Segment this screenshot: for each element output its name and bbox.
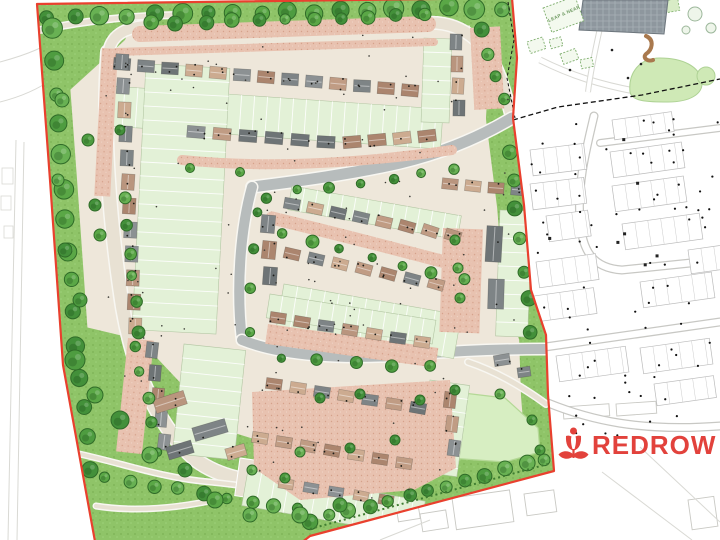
speck [314,281,316,283]
house [265,131,284,145]
speck [262,389,264,391]
tree-icon [450,385,460,395]
large-building-roof [579,0,668,34]
speck [170,89,172,91]
tree-icon [51,144,70,163]
speck [161,335,163,337]
tree-icon [335,244,344,253]
house [212,127,231,141]
estate-tree-dot [668,150,670,152]
tree-icon [464,0,485,19]
speck [264,249,266,251]
tree-icon [382,496,393,507]
speck [155,71,157,73]
estate-tree-dot [674,208,676,210]
tree-icon [82,462,98,478]
speck [127,280,129,282]
tree-icon [225,13,239,27]
tree-icon [245,283,255,293]
speck [287,148,289,150]
estate-tree-dot [701,217,703,219]
house [464,180,481,193]
speck [181,78,183,80]
tree-icon [266,499,280,513]
tree-icon [389,174,398,183]
tree-icon [186,164,195,173]
tree-icon [80,429,96,445]
speck [141,380,143,382]
speck [335,333,337,335]
speck [273,461,275,463]
tree-icon [490,71,501,82]
speck [193,87,195,89]
estate-tree-dot [569,316,571,318]
speck [393,422,395,424]
estate-tree-dot [642,153,644,155]
outline-tree-icon [688,7,702,21]
tree-icon [200,16,214,30]
house [371,452,389,465]
estate-tree-dot [589,342,591,344]
estate-tree-dot [675,354,677,356]
tree-icon [121,219,133,231]
tree-icon [89,199,101,211]
speck [183,328,185,330]
tree-icon [363,500,377,514]
speck [399,181,401,183]
house [161,62,179,75]
speck [156,206,158,208]
speck [349,218,351,220]
tree-icon [58,243,72,257]
estate-tree-dot [575,415,577,417]
estate-tree-dot [653,376,655,378]
speck [384,109,386,111]
tree-icon [132,326,145,339]
tree-icon [111,411,129,429]
speck [507,99,509,101]
speck [362,139,364,141]
tree-icon [495,2,510,17]
house [417,129,436,143]
tree-icon [345,443,355,453]
speck [286,329,288,331]
speck [339,261,341,263]
masterplan-svg: LEAP & NEAP REDROW [0,0,720,540]
tree-icon [513,232,525,244]
tree-icon [324,509,335,520]
house [232,68,250,81]
tree-icon [245,327,254,336]
estate-tree-dot [546,233,548,235]
tree-icon [404,489,417,502]
speck [412,37,414,39]
speck [503,194,505,196]
speck [197,129,199,131]
estate-tree-dot [711,175,713,177]
estate-tree-dot [568,395,570,397]
tree-icon [124,475,137,488]
speck [245,79,247,81]
tree-icon [527,415,537,425]
estate-tree-dot [628,391,630,393]
tree-icon [306,235,319,248]
estate-tree-dot [574,143,576,145]
estate-tree-dot [574,173,576,175]
estate-tree-dot [634,311,636,313]
estate-tree-dot [587,328,589,330]
estate-tree-dot [640,395,642,397]
estate-tree-dot [644,327,646,329]
speck [125,113,127,115]
speck [276,387,278,389]
house [121,174,135,191]
speck [294,160,296,162]
house [328,486,344,498]
speck [368,55,370,57]
speck [504,172,506,174]
estate-tree-dot [697,365,699,367]
outline-tree-icon [706,23,716,33]
house [453,99,465,116]
estate-tree-dot [673,134,675,136]
estate-tree-dot [593,397,595,399]
estate-tree-dot [697,209,699,211]
estate-tree-dot [531,163,533,165]
tree-icon [134,367,143,376]
estate-tree-dot [575,123,577,125]
speck [282,430,284,432]
tree-icon [315,393,325,403]
estate-tree-dot [615,213,617,215]
speck [285,212,287,214]
estate-tree-dot [680,323,682,325]
speck [439,469,441,471]
house [251,431,269,444]
tree-icon [361,11,375,25]
speck [207,60,209,62]
tree-icon [324,182,335,193]
estate-tree-dot [579,240,581,242]
tree-icon [398,262,407,271]
house [377,82,395,95]
tree-icon [507,201,522,216]
speck [125,63,127,65]
house [317,319,334,332]
estate-tree-dot [658,364,660,366]
speck [308,263,310,265]
estate-tree-dot [653,198,655,200]
park-mark [627,77,630,80]
estate-tree-dot [556,198,558,200]
tree-icon [207,492,223,508]
house [441,178,458,191]
tree-icon [440,0,459,16]
speck [362,35,364,37]
house [239,129,258,143]
tree-icon [425,360,436,371]
tree-icon [503,145,517,159]
speck [315,82,317,84]
tree-icon [253,14,266,27]
tree-icon [350,356,362,368]
tree-icon [417,169,426,178]
tree-icon [508,174,521,187]
tree-icon [422,485,434,497]
tree-icon [99,472,109,482]
estate-tree-dot [539,171,541,173]
speck [234,324,236,326]
estate-tree-dot [649,421,651,423]
house [281,73,299,86]
house [137,60,155,73]
tree-icon [236,168,245,177]
park-mark [640,63,643,66]
tree-icon [253,208,262,217]
speck [215,268,217,270]
tree-icon [71,369,88,386]
estate-tree-dot [594,360,596,362]
tree-icon [311,354,322,365]
speck [385,182,387,184]
house [265,377,282,390]
estate-tree-dot [664,263,666,265]
speck [409,196,411,198]
tree-icon [73,293,87,307]
estate-tree-dot [543,306,545,308]
speck [453,284,455,286]
development-site [37,0,554,540]
estate-tree-dot [685,206,687,208]
tree-icon [249,244,259,254]
tree-icon [425,267,437,279]
speck [267,209,269,211]
estate-tree-dot [578,195,580,197]
tree-icon [453,263,463,273]
speck [260,118,262,120]
estate-mark [623,232,626,235]
speck [143,337,145,339]
estate-tree-dot [652,287,654,289]
house [116,78,131,95]
tree-icon [389,9,402,22]
tree-icon [50,115,67,132]
tree-icon [390,435,400,445]
house [209,66,227,79]
speck [454,327,456,329]
tree-icon [292,507,308,523]
speck [228,224,230,226]
house [118,102,132,119]
outline-tree-icon [682,26,690,34]
tree-icon [333,498,347,512]
tree-icon [498,461,513,476]
speck [142,292,144,294]
speck [317,442,319,444]
tree-icon [94,229,106,241]
speck [443,378,445,380]
house [445,415,459,433]
speck [349,302,351,304]
house [447,439,461,456]
tree-icon [459,274,470,285]
siteplan-canvas: LEAP & NEAP REDROW [0,0,720,540]
tree-icon [277,229,287,239]
block-paving-street [140,24,428,34]
estate-tree-dot [678,184,680,186]
speck [226,102,228,104]
tree-icon [336,13,347,24]
tree-icon [142,447,158,463]
tree-icon [115,125,125,135]
tree-icon [146,417,157,428]
tree-icon [455,293,465,303]
speck [130,74,132,76]
tree-icon [277,354,285,362]
estate-tree-dot [673,161,675,163]
speck [371,497,373,499]
tree-icon [247,465,257,475]
house [493,353,511,366]
estate-mark [616,241,619,244]
estate-tree-dot [676,415,678,417]
tree-icon [168,16,183,31]
garden-field [132,64,230,334]
house [343,135,362,149]
house [305,75,323,88]
speck [161,325,163,327]
speck [334,323,336,325]
house [488,182,505,194]
tree-icon [55,93,69,107]
tree-icon [45,51,64,70]
speck [262,46,264,48]
estate-tree-dot [590,224,592,226]
estate-tree-dot [583,286,585,288]
speck [137,281,139,283]
tree-icon [77,400,92,415]
speck [247,426,249,428]
tree-icon [482,48,494,60]
tree-icon [538,454,550,466]
tree-icon [68,9,83,24]
speck [400,303,402,305]
estate-tree-dot [672,118,674,120]
speck [434,392,436,394]
house [317,136,336,149]
speck [230,273,232,275]
house [385,397,402,410]
estate-tree-dot [630,152,632,154]
house [365,327,383,341]
tree-icon [125,248,137,260]
speck [419,152,421,154]
speck [466,331,468,333]
speck [363,324,365,326]
tree-icon [131,296,143,308]
speck [301,426,303,428]
house [291,133,311,146]
tree-icon [87,387,103,403]
house [488,279,505,309]
speck [283,80,285,82]
tree-icon [419,8,431,20]
tree-icon [247,496,259,508]
estate-tree-dot [696,262,698,264]
speck [276,346,278,348]
house [120,150,134,167]
house [395,457,412,470]
speck [513,319,515,321]
speck [410,287,412,289]
speck [216,64,218,66]
house [517,366,531,378]
speck [275,372,277,374]
estate-tree-dot [688,218,690,220]
house [451,56,463,72]
speck [343,93,345,95]
estate-tree-dot [643,120,645,122]
garden-field [421,38,452,123]
speck [463,254,465,256]
estate-tree-dot [579,211,581,213]
speck [227,292,229,294]
speck [330,300,332,302]
estate-mark [656,254,659,257]
estate-tree-dot [667,285,669,287]
tree-icon [355,389,365,399]
estate-tree-dot [582,423,584,425]
estate-tree-dot [709,342,711,344]
estate-tree-dot [668,129,670,131]
house [413,335,430,348]
speck [437,81,439,83]
estate-tree-dot [650,162,652,164]
house [115,54,129,71]
estate-tree-dot [605,148,607,150]
brand-wordmark: REDROW [592,430,716,460]
tree-icon [56,210,74,228]
estate-terrace-block [546,210,591,242]
house [450,34,463,50]
speck [295,198,297,200]
tree-icon [449,164,459,174]
tree-icon [386,360,399,373]
speck [108,296,110,298]
speck [353,244,355,246]
tree-icon [64,272,78,286]
house [389,331,407,344]
house [353,80,371,93]
house [367,133,386,147]
tree-icon [143,392,155,404]
estate-tree-dot [704,226,706,228]
tree-icon [144,15,159,30]
estate-tree-dot [717,121,719,123]
estate-tree-dot [638,208,640,210]
estate-tree-dot [567,308,569,310]
tree-icon [535,445,545,455]
house [257,70,275,84]
tree-icon [450,235,460,245]
estate-tree-dot [649,262,651,264]
tree-icon [52,174,64,186]
house [260,214,276,233]
speck [105,95,107,97]
tree-icon [130,341,140,351]
estate-tree-dot [648,302,650,304]
estate-tree-dot [656,194,658,196]
